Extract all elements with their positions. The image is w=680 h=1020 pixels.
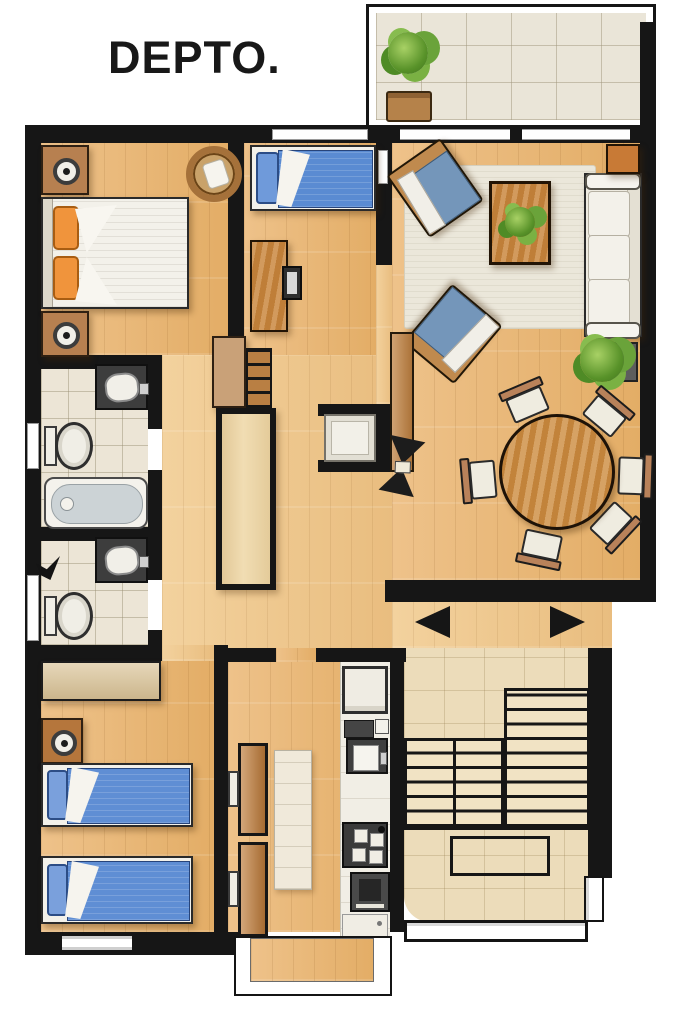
wall-right-living (640, 143, 656, 602)
monitor-screen (287, 272, 297, 294)
sheet-fold (75, 257, 117, 305)
faucet-icon (139, 383, 149, 395)
nightstand (41, 311, 89, 357)
terrace-plant-icon (388, 32, 428, 74)
burner (354, 829, 368, 843)
fridge-icon (342, 666, 388, 714)
bathtub-drain (60, 497, 74, 511)
direction-arrow-right-icon (550, 606, 585, 638)
sheet-fold (75, 205, 117, 253)
bed-pillow (47, 770, 68, 820)
floor-plan: DEPTO. (0, 0, 680, 1020)
terrace-slider-mullion-mid (510, 129, 522, 140)
table-plant-icon (505, 207, 535, 237)
utensil-tray-icon (375, 719, 389, 734)
desk (41, 661, 161, 701)
toilet (44, 589, 94, 643)
single-bed-blue (250, 145, 376, 211)
wall-bath-right-a (148, 369, 162, 429)
cooktop-icon (342, 822, 388, 868)
plan-title: DEPTO. (108, 32, 281, 84)
stairs-divider (453, 741, 456, 827)
kitchen-balcony-floor (250, 938, 374, 982)
sofa-cushion (588, 279, 630, 325)
stairs-railing (404, 920, 588, 942)
bedroom3-door-floor (162, 645, 214, 661)
sofa-cushion (588, 235, 630, 281)
sofa-cushion (588, 191, 630, 237)
monitor-icon (282, 266, 302, 300)
pillow-orange (53, 256, 79, 300)
oven-icon (350, 872, 390, 912)
sink-basin (353, 745, 379, 771)
sideboard (212, 336, 246, 408)
wardrobe-door (238, 842, 268, 937)
single-bed-blue (41, 856, 193, 924)
nightstand (41, 145, 89, 195)
faucet-icon (380, 752, 387, 765)
wall-stairs-right (588, 648, 612, 878)
fan-hub (395, 461, 411, 474)
terrace-slider-mullion-left (392, 129, 400, 140)
burner (369, 850, 383, 864)
double-bed (41, 197, 189, 309)
alcove-seat (324, 414, 376, 462)
stairs-upper-flight (504, 688, 590, 830)
wardrobe (228, 743, 268, 937)
sofa-white (584, 173, 642, 337)
sofa-armrest (585, 322, 641, 339)
chair-seat (617, 456, 644, 495)
wall-dining-bottom (385, 580, 640, 602)
wardrobe-handle (228, 771, 239, 807)
chair-seat (468, 460, 497, 500)
oven-door (359, 879, 381, 901)
single-bed-blue (41, 763, 193, 827)
sink-basin (104, 371, 141, 403)
sink-unit-icon (346, 738, 388, 774)
stairs-lower-flights (404, 738, 504, 830)
wall-kitchen-stairs (390, 648, 404, 932)
sofa-armrest (585, 173, 641, 190)
dining-chair (459, 456, 499, 505)
wall-left (25, 143, 41, 955)
island-counter (274, 750, 312, 890)
slatted-rack (246, 348, 272, 410)
bed-pillow (256, 152, 279, 204)
vanity-sink (95, 364, 148, 410)
pouf-cushion (202, 158, 231, 190)
kitchen-door-floor (276, 648, 316, 662)
floor-plant-icon (580, 338, 624, 382)
wall-kitchen-top-left (228, 648, 276, 662)
faucet-icon (139, 556, 149, 568)
dining-chair (616, 452, 654, 499)
pillow-orange (53, 206, 79, 250)
round-pouf (186, 146, 242, 202)
lamp-icon (51, 730, 77, 756)
wardrobe-door (238, 743, 268, 836)
cabinet-knob (377, 921, 382, 926)
direction-arrow-left-icon (415, 606, 450, 638)
lamp-icon (53, 158, 80, 185)
oven-handle (356, 904, 384, 908)
bed-headboard (43, 199, 53, 307)
wall-bed3-right (214, 645, 228, 932)
knob (378, 826, 385, 833)
burner (352, 848, 366, 862)
lamp-icon (53, 322, 80, 349)
bed-pillow (47, 864, 68, 916)
wardrobe-handle (228, 871, 239, 907)
stairs-gate (584, 876, 604, 922)
utensil-tray-icon (344, 720, 374, 738)
toilet (44, 420, 94, 472)
window-bath1 (27, 423, 39, 469)
hallway-floor (162, 355, 392, 660)
window-bedroom2 (272, 129, 368, 140)
dining-table (499, 414, 615, 530)
window-bedroom3 (62, 936, 132, 950)
window-bath2 (27, 575, 39, 641)
terrace-right-wall (640, 22, 656, 125)
nightstand (41, 718, 83, 764)
wall-bath2-bottom (25, 645, 162, 661)
toilet-bowl (55, 592, 93, 640)
burner (370, 833, 384, 847)
toilet-bowl (55, 422, 93, 470)
door-mark-living (378, 150, 388, 184)
vanity-sink (95, 537, 148, 583)
sink-basin (104, 544, 141, 576)
stairwell-opening (450, 836, 550, 876)
bathtub (44, 477, 148, 529)
built-in-closet (216, 408, 276, 590)
terrace-plant-pot (386, 91, 432, 122)
wall-bath-right-b (148, 470, 162, 580)
terrace-slider-mullion-right (630, 129, 638, 140)
side-table (606, 144, 640, 174)
